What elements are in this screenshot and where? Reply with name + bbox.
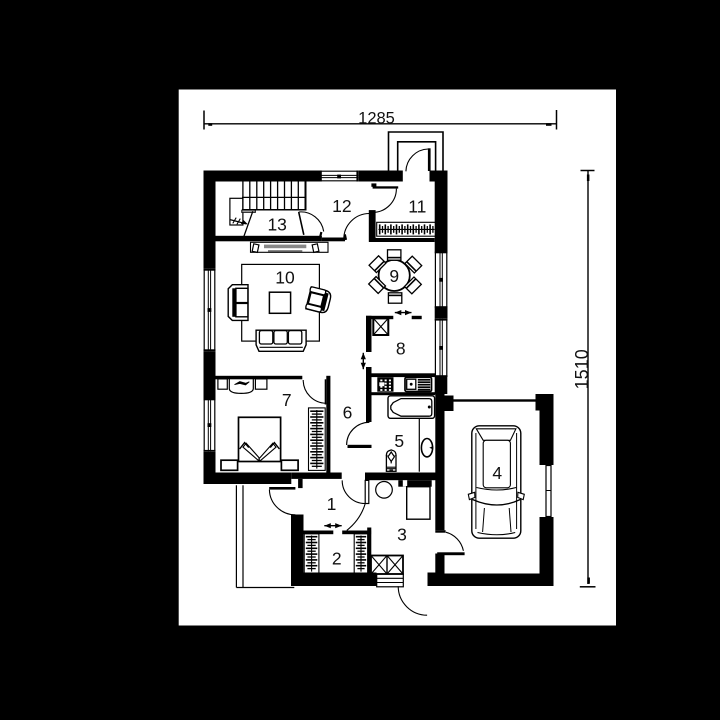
svg-text:11: 11 [408, 197, 426, 217]
svg-text:10: 10 [275, 268, 295, 288]
svg-text:5: 5 [394, 431, 404, 451]
svg-text:4: 4 [492, 463, 502, 483]
svg-text:1: 1 [327, 494, 337, 514]
svg-text:2: 2 [332, 549, 342, 569]
svg-text:6: 6 [343, 403, 353, 423]
svg-text:13: 13 [267, 215, 286, 235]
svg-text:9: 9 [389, 266, 399, 286]
svg-text:8: 8 [396, 339, 406, 359]
svg-text:1285: 1285 [358, 109, 395, 127]
svg-text:12: 12 [332, 196, 351, 216]
svg-text:3: 3 [397, 525, 407, 545]
svg-text:1510: 1510 [572, 349, 592, 389]
svg-text:7: 7 [282, 390, 292, 410]
